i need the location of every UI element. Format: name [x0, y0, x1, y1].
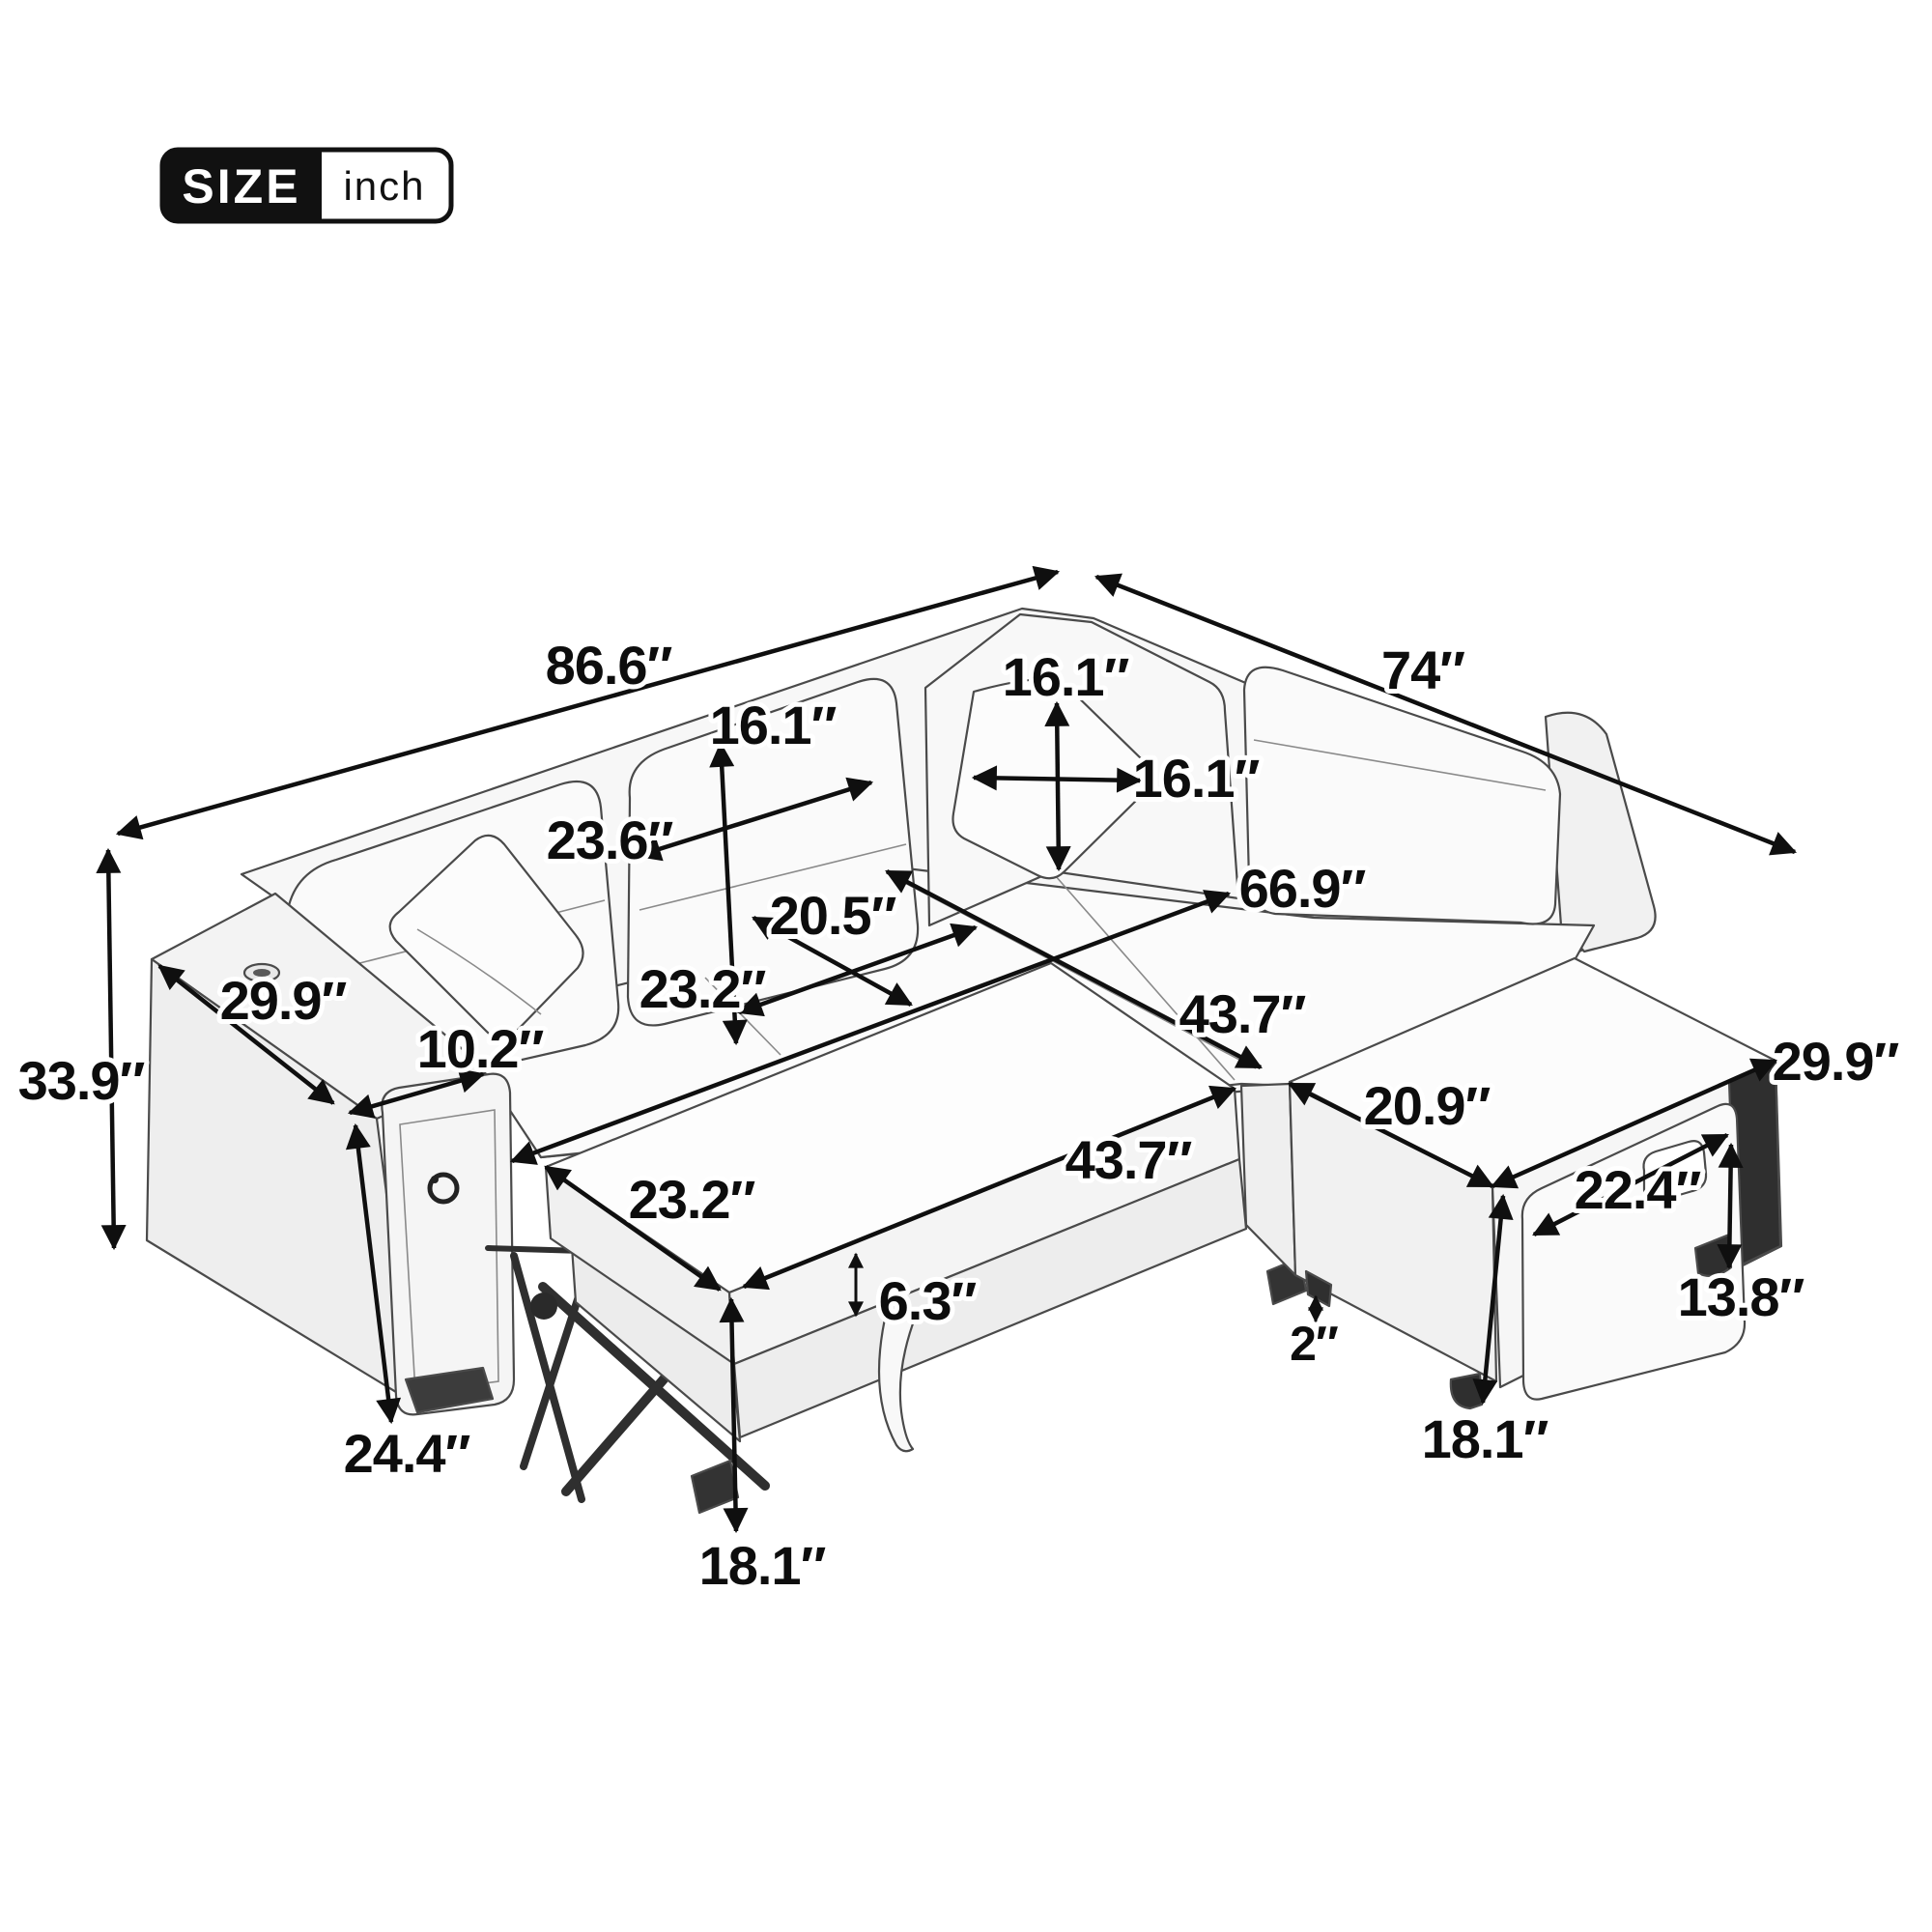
- label-chaise-height: 18.1″: [1422, 1408, 1548, 1469]
- label-pillow-height: 16.1″: [1003, 646, 1129, 707]
- label-arm-length: 29.9″: [220, 970, 347, 1031]
- arrow-pillow-width: [974, 778, 1140, 781]
- arrow-drawer-height: [1729, 1145, 1731, 1267]
- label-chaise-depth: 29.9″: [1773, 1031, 1899, 1092]
- label-overall-back-width: 86.6″: [546, 635, 672, 696]
- mechanism-wheel-1: [530, 1293, 557, 1320]
- bed-foot-left: [692, 1461, 738, 1513]
- label-interior-length: 66.9″: [1239, 858, 1366, 919]
- label-pullout-front-length: 43.7″: [1065, 1129, 1192, 1190]
- sofa-dimension-diagram: SIZE inch: [0, 0, 1932, 1932]
- arrow-overall-height: [108, 850, 114, 1248]
- label-drawer-width: 22.4″: [1575, 1159, 1701, 1220]
- sofa-front-corner-face: [1241, 1084, 1295, 1275]
- size-diagram-page: SIZE inch: [0, 0, 1932, 1932]
- label-overall-right-depth: 74″: [1381, 639, 1464, 700]
- label-pullout-height: 18.1″: [699, 1535, 826, 1596]
- label-seat-depth: 20.5″: [770, 885, 896, 946]
- label-drawer-height: 13.8″: [1678, 1266, 1804, 1327]
- label-back-cushion-width: 23.6″: [547, 810, 673, 870]
- size-unit-badge: SIZE inch: [162, 150, 451, 221]
- badge-size-label: SIZE: [182, 159, 300, 213]
- sofa-line-art: [147, 609, 1781, 1513]
- label-chaise-seat-width: 20.9″: [1364, 1075, 1491, 1136]
- label-pullout-top-length: 43.7″: [1179, 983, 1306, 1044]
- label-pullout-depth: 23.2″: [629, 1169, 755, 1230]
- label-leg-clearance: 2″: [1290, 1317, 1339, 1371]
- label-seat-width: 23.2″: [639, 958, 766, 1019]
- label-arm-front-height: 24.4″: [344, 1423, 470, 1484]
- label-arm-top-width: 10.2″: [417, 1018, 544, 1079]
- label-back-cushion-height: 16.1″: [710, 695, 837, 755]
- label-mattress-thickness: 6.3″: [879, 1270, 977, 1331]
- usb-port-dot: [431, 1176, 439, 1183]
- label-pillow-width: 16.1″: [1133, 748, 1260, 809]
- arrow-pillow-height: [1057, 703, 1059, 869]
- chaise-foot-front: [1451, 1374, 1482, 1408]
- label-overall-height: 33.9″: [18, 1050, 145, 1111]
- right-arm-panel: [1546, 713, 1656, 952]
- badge-unit-label: inch: [343, 163, 425, 209]
